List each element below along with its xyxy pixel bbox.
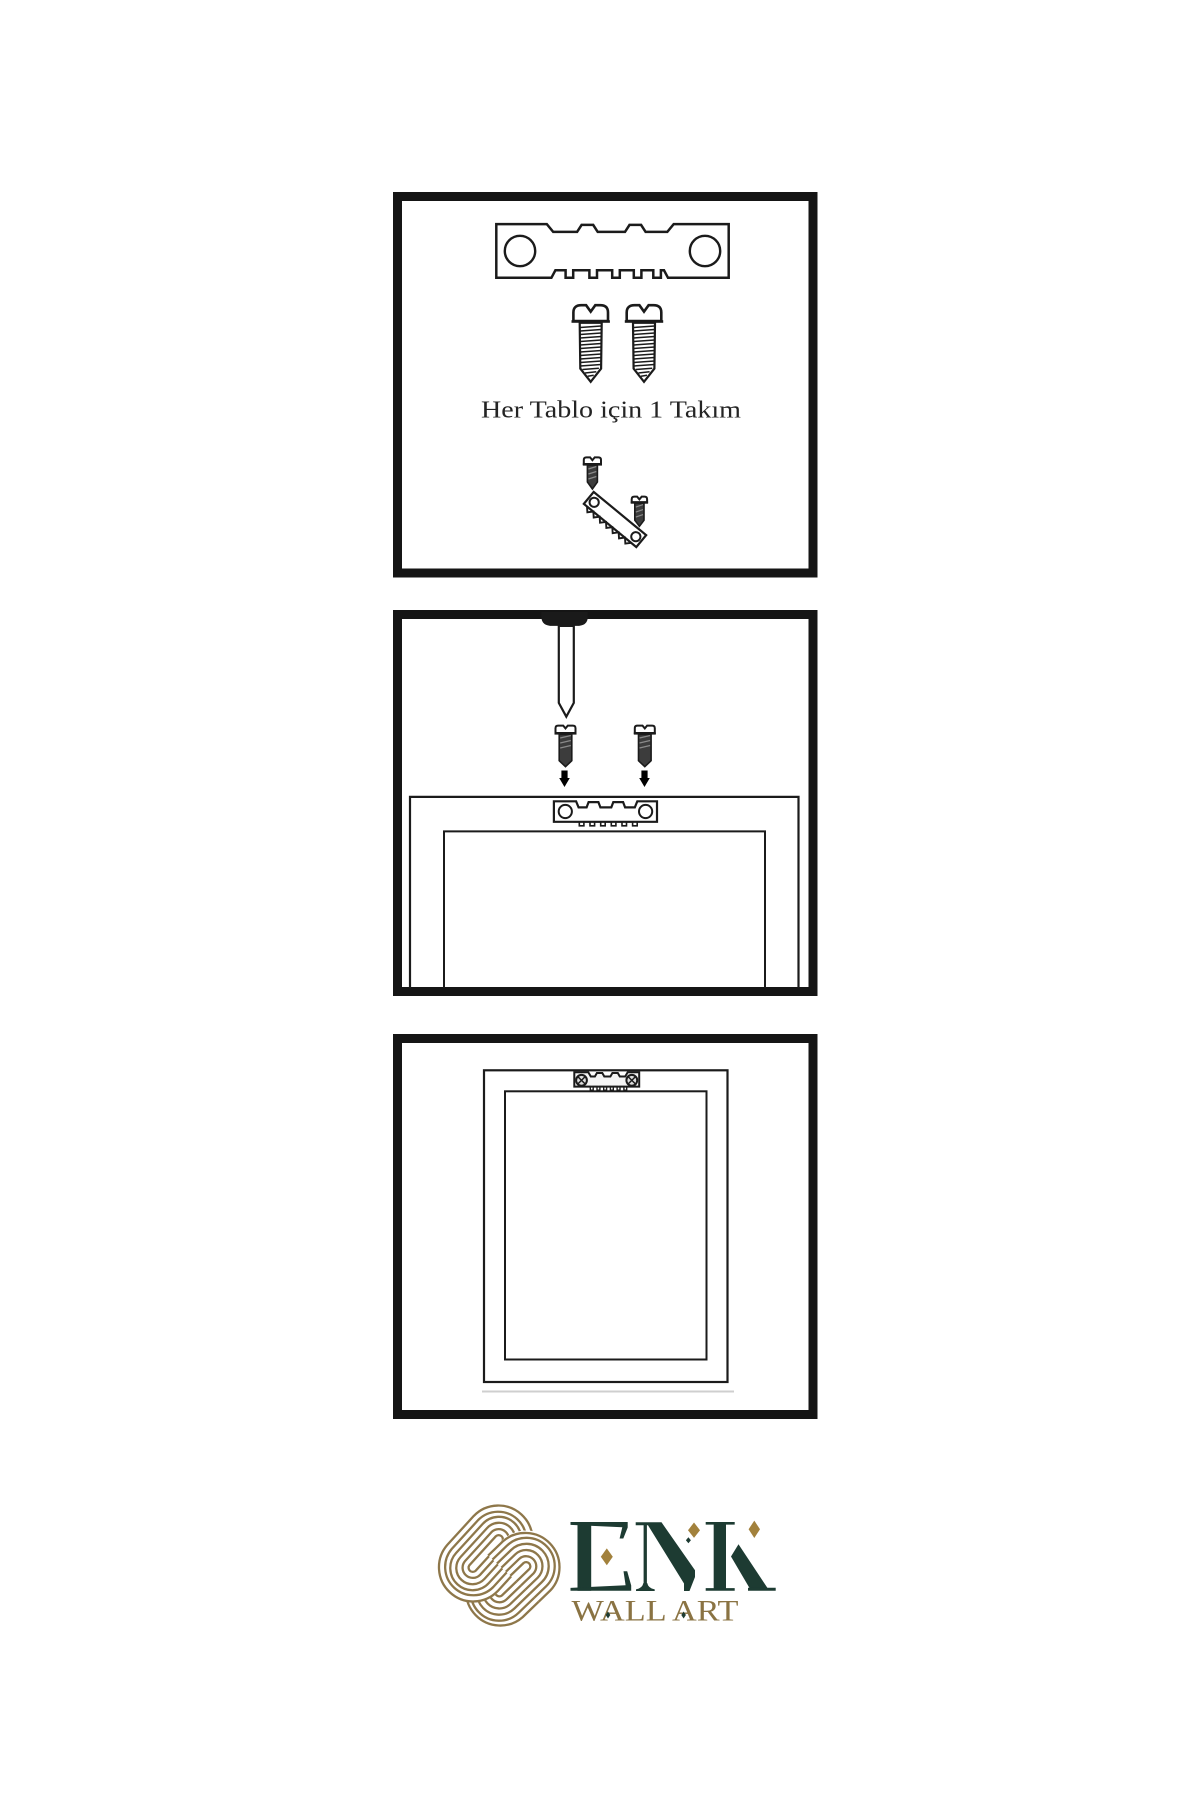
svg-text:Her Tablo için 1 Takım: Her Tablo için 1 Takım	[481, 397, 741, 424]
svg-text:WALL ART: WALL ART	[572, 1595, 739, 1628]
